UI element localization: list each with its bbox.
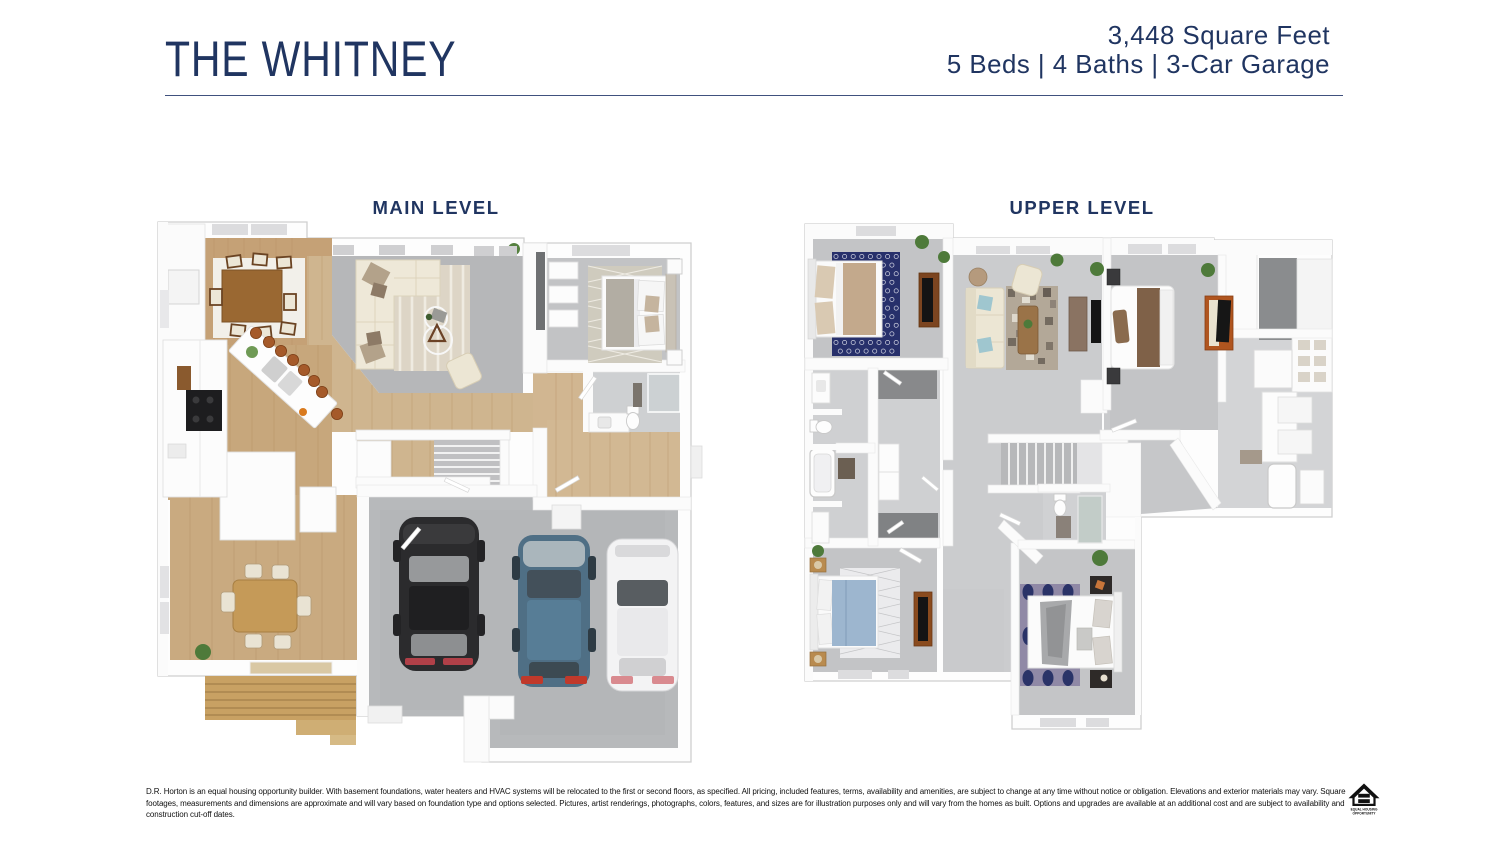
svg-text:OPPORTUNITY: OPPORTUNITY xyxy=(1352,812,1376,816)
